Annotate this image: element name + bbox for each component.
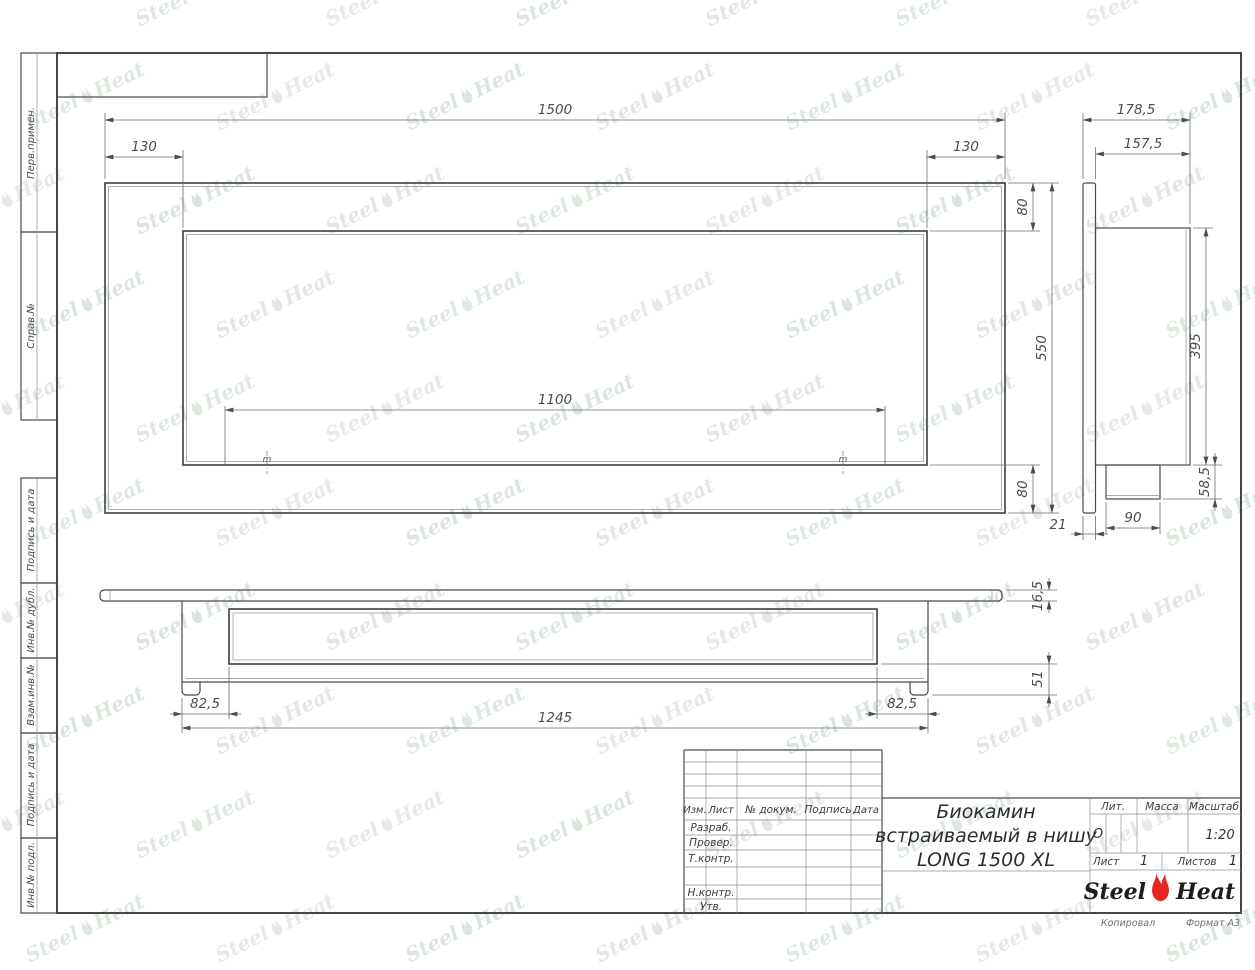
svg-text:550: 550 — [1034, 335, 1050, 361]
technical-drawing: Перв.примен. Справ.№ Подпись и дата Инв.… — [0, 0, 1255, 970]
dim-front-bottom-offset: 80 — [1015, 465, 1033, 513]
svg-text:1500: 1500 — [538, 102, 572, 118]
front-view: m m 1500 130 13 — [105, 102, 1059, 513]
sidebar-label: Инв.№ дубл. — [25, 587, 37, 652]
svg-text:80: 80 — [1015, 198, 1031, 215]
right-foot — [910, 682, 928, 695]
row-prover: Провер. — [689, 837, 733, 849]
svg-text:130: 130 — [953, 139, 979, 155]
format-label: Формат А3 — [1186, 918, 1240, 929]
dim-front-opening-width: 1100 — [225, 392, 885, 410]
sidebar-label: Инв.№ подл. — [26, 842, 37, 908]
dim-plan-left-inset: 82,5 — [170, 696, 241, 714]
dim-plan-flange-thickness: 16,5 — [1030, 578, 1049, 613]
scale-value: 1:20 — [1205, 828, 1234, 843]
dim-front-right-offset: 130 — [927, 139, 1005, 157]
top-left-stamp-box — [57, 53, 267, 97]
row-razrab: Разраб. — [690, 822, 731, 834]
col-ndocum: № докум. — [744, 804, 797, 816]
sheet-value: 1 — [1140, 854, 1148, 869]
scale-label: Масштаб — [1189, 801, 1239, 813]
mount-mark: m — [839, 455, 848, 465]
svg-text:130: 130 — [131, 139, 157, 155]
dim-side-panel-thickness: 21 — [1049, 517, 1108, 534]
copied-by-label: Копировал — [1101, 918, 1155, 929]
svg-text:51: 51 — [1030, 670, 1046, 687]
sheets-value: 1 — [1229, 854, 1237, 869]
sheets-label: Листов — [1176, 856, 1216, 868]
sidebar-label: Взам.инв.№ — [26, 664, 37, 726]
row-nkontr: Н.контр. — [688, 887, 735, 899]
svg-text:58,5: 58,5 — [1197, 467, 1213, 497]
col-izm: Изм. — [683, 805, 707, 816]
svg-text:80: 80 — [1015, 480, 1031, 497]
dim-side-box-depth: 90 — [1106, 510, 1160, 528]
dim-front-top-offset: 80 — [1015, 183, 1033, 231]
sidebar-label: Справ.№ — [26, 303, 37, 348]
dim-plan-body-length: 1245 — [182, 710, 928, 728]
doc-title-line1: Биокамин — [936, 801, 1035, 823]
side-view: 178,5 157,5 395 58,5 90 — [1049, 102, 1222, 540]
left-foot — [182, 682, 200, 695]
svg-text:178,5: 178,5 — [1117, 102, 1156, 118]
svg-text:1245: 1245 — [538, 710, 572, 726]
col-data: Дата — [852, 805, 879, 816]
dim-plan-right-inset: 82,5 — [865, 696, 940, 714]
dim-front-overall-width: 1500 — [105, 102, 1005, 120]
plan-view: 16,5 51 82,5 82,5 1245 — [100, 578, 1057, 733]
lit-value: О — [1093, 827, 1103, 842]
lit-label: Лит. — [1100, 801, 1125, 813]
svg-text:21: 21 — [1049, 517, 1066, 533]
sheet-label: Лист — [1092, 856, 1120, 868]
dim-side-body-depth: 157,5 — [1096, 136, 1191, 154]
drawing-frame — [57, 53, 1241, 913]
svg-text:1100: 1100 — [538, 392, 572, 408]
dim-front-overall-height: 550 — [1034, 183, 1052, 513]
logo-steel-text: Steel — [1084, 879, 1146, 905]
mount-mark: m — [263, 455, 272, 465]
sidebar-label: Подпись и дата — [26, 489, 37, 572]
dim-side-overall-depth: 178,5 — [1083, 102, 1190, 120]
svg-text:16,5: 16,5 — [1030, 581, 1046, 611]
svg-text:157,5: 157,5 — [1124, 136, 1163, 152]
dim-plan-body-drop: 51 — [1030, 652, 1049, 707]
dim-front-left-offset: 130 — [105, 139, 183, 157]
svg-text:90: 90 — [1124, 510, 1141, 526]
blueprint-page: SteelHeatSteelHeatSteelHeatSteelHeatStee… — [0, 0, 1255, 970]
svg-text:82,5: 82,5 — [190, 696, 220, 712]
dim-side-body-height: 395 — [1188, 228, 1206, 465]
row-tkontr: Т.контр. — [688, 853, 734, 865]
sidebar-column: Перв.примен. Справ.№ Подпись и дата Инв.… — [21, 53, 57, 913]
svg-text:395: 395 — [1188, 333, 1204, 359]
col-list: Лист — [707, 805, 735, 816]
col-podpis: Подпись — [804, 804, 851, 816]
doc-title-line2: встраиваемый в нишу — [875, 825, 1097, 847]
sidebar-label: Подпись и дата — [26, 744, 37, 827]
steel-heat-logo: Steel Heat — [1084, 873, 1236, 905]
flame-icon — [1152, 873, 1169, 901]
svg-text:82,5: 82,5 — [887, 696, 917, 712]
row-utv: Утв. — [700, 901, 722, 913]
sidebar-label: Перв.примен. — [26, 107, 37, 179]
mass-label: Масса — [1145, 801, 1178, 813]
logo-heat-text: Heat — [1175, 879, 1235, 905]
title-block: Изм. Лист № докум. Подпись Дата Разраб. … — [683, 750, 1241, 913]
doc-title-line3: LONG 1500 XL — [917, 849, 1055, 871]
